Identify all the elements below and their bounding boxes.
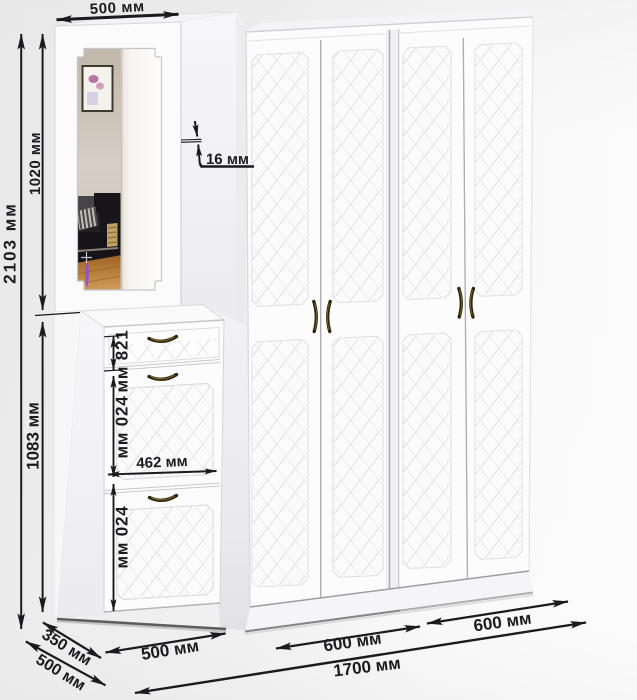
svg-text:мм 024: мм 024 (112, 395, 131, 458)
svg-text:2103 мм: 2103 мм (1, 202, 20, 284)
svg-text:462 мм: 462 мм (136, 453, 188, 472)
svg-text:мм 024: мм 024 (112, 505, 131, 568)
svg-text:1020 мм: 1020 мм (27, 132, 44, 195)
svg-text:16 мм: 16 мм (206, 151, 249, 168)
svg-text:1083 мм: 1083 мм (24, 402, 43, 470)
svg-text:мм 821: мм 821 (112, 329, 131, 392)
